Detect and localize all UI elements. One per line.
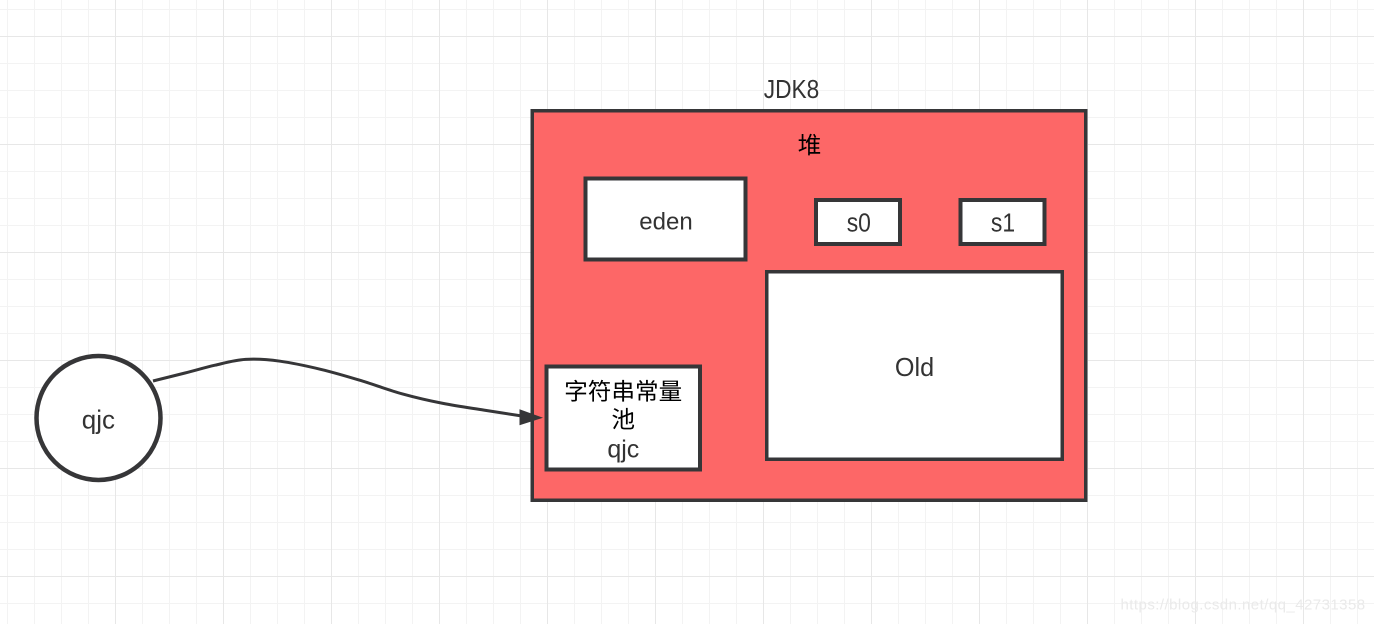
svg-text:s1: s1 xyxy=(991,210,1015,238)
svg-text:Old: Old xyxy=(895,352,934,382)
svg-text:qjc: qjc xyxy=(82,404,115,434)
svg-text:s0: s0 xyxy=(847,210,871,238)
svg-text:JDK8: JDK8 xyxy=(764,74,820,104)
svg-text:https://blog.csdn.net/qq_42731: https://blog.csdn.net/qq_42731358 xyxy=(1121,596,1366,613)
svg-text:eden: eden xyxy=(639,208,692,235)
svg-text:qjc: qjc xyxy=(607,436,639,464)
